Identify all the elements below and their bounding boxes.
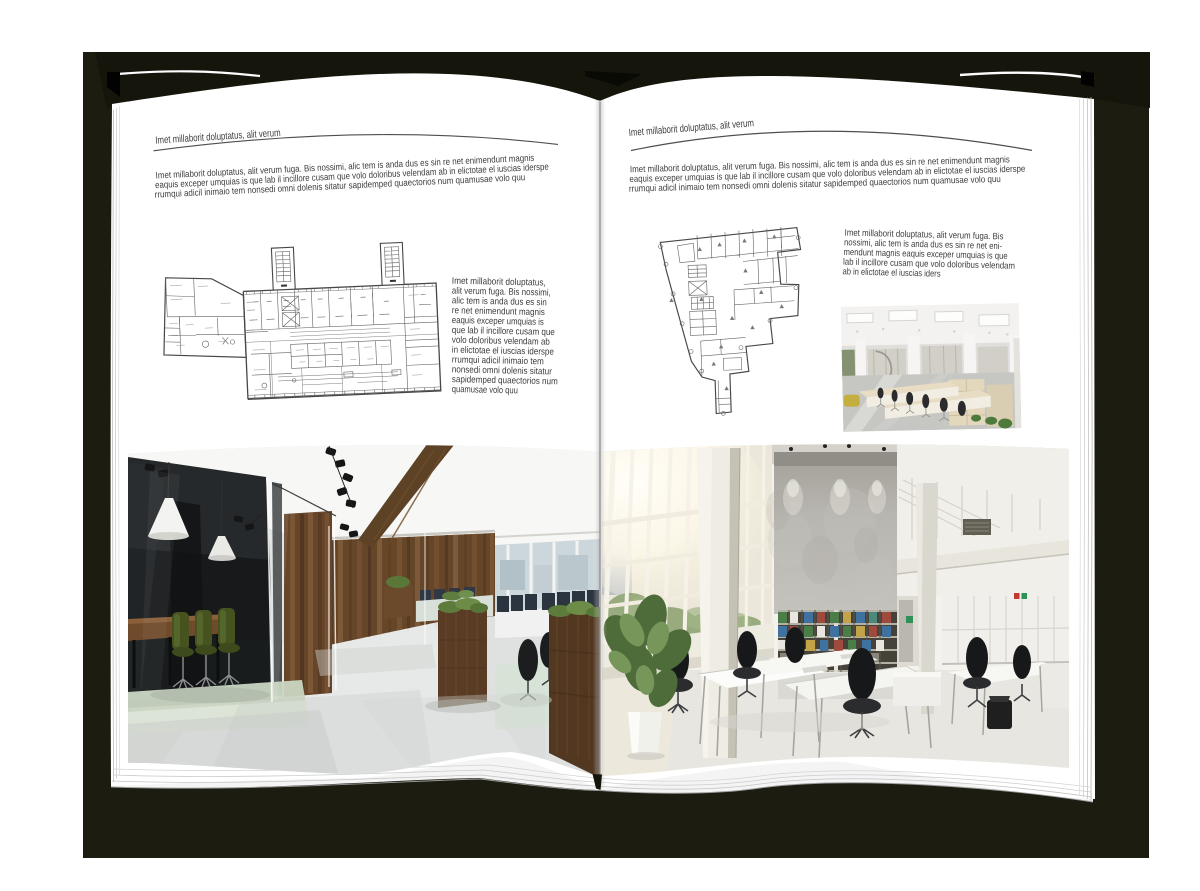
svg-text:quamusae volo quu: quamusae volo quu [452,384,518,395]
